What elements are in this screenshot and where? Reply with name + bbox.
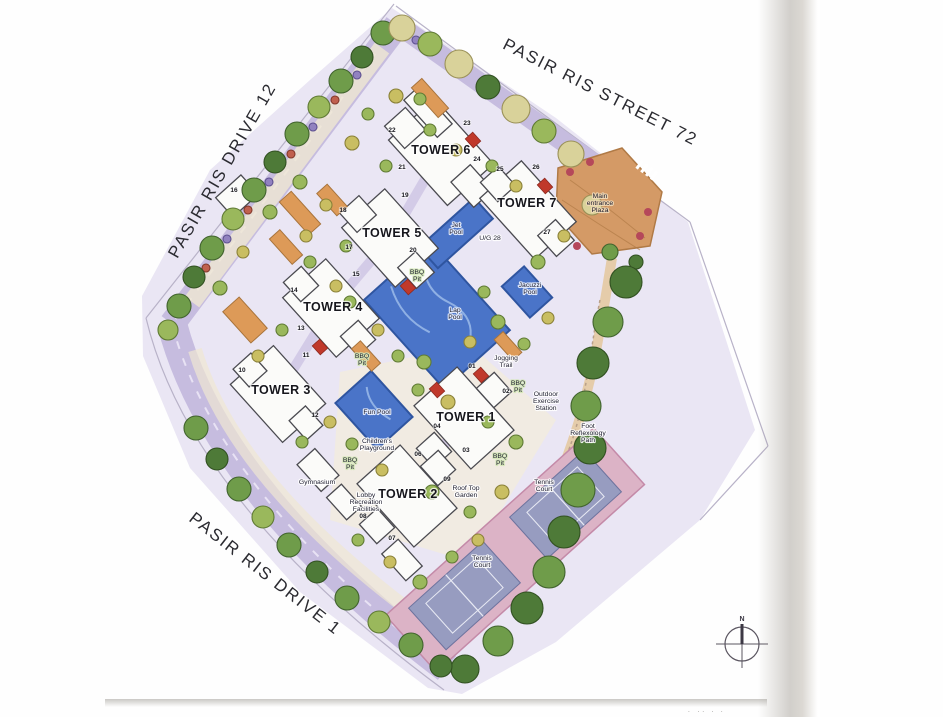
tree-icon [222,208,244,230]
shrub-icon [276,324,288,336]
block-number: 10 [238,367,246,374]
shrub-icon [372,324,384,336]
block-number: 24 [473,156,481,163]
shrub-icon [362,108,374,120]
tower-label: TOWER 5 [362,226,422,240]
shrub-icon [414,93,426,105]
tower-label: TOWER 7 [497,196,557,210]
tree-icon [368,611,390,633]
tree-icon [502,95,530,123]
block-number: 01 [468,363,476,370]
flower-bed [636,232,644,240]
block-number: 06 [414,451,422,458]
tree-icon [445,50,473,78]
shrub-icon [252,350,264,362]
shrub-icon [424,124,436,136]
block-number: 03 [462,447,470,454]
tree-icon [206,448,228,470]
flower-bed [586,158,594,166]
shrub-icon [446,551,458,563]
shrub-icon [464,506,476,518]
tower-label: TOWER 2 [378,487,438,501]
tree-icon [430,655,452,677]
block-number: 21 [398,164,406,171]
flower-bed [566,168,574,176]
tree-icon [577,347,609,379]
shrub-icon [223,235,231,243]
block-number: 26 [532,164,540,171]
block-number: 04 [433,423,441,430]
block-number: 17 [345,244,353,251]
amenity-label: Roof TopGarden [452,485,479,499]
tree-icon [610,266,642,298]
tree-icon [264,151,286,173]
tree-icon [593,307,623,337]
shrub-icon [380,160,392,172]
block-number: 09 [443,476,451,483]
scanned-site-plan-page: PASIR RIS DRIVE 12PASIR RIS STREET 72PAS… [0,0,943,717]
shrub-icon [531,255,545,269]
tree-icon [548,516,580,548]
block-number: 22 [388,127,396,134]
tree-icon [451,655,479,683]
tree-icon [252,506,274,528]
block-number: 13 [297,325,305,332]
tree-icon [335,586,359,610]
shrub-icon [244,206,252,214]
amenity-label: TennisCourt [534,479,554,493]
shrub-icon [495,485,509,499]
shrub-icon [491,315,505,329]
shrub-icon [472,534,484,546]
block-number: 02 [502,388,510,395]
shrub-icon [320,199,332,211]
tree-icon [285,122,309,146]
shrub-icon [389,89,403,103]
amenity-label: TennisCourt [472,555,492,569]
shrub-icon [478,286,490,298]
tree-icon [183,266,205,288]
tree-icon [533,556,565,588]
shrub-icon [558,230,570,242]
tree-icon [476,75,500,99]
tree-icon [351,46,373,68]
tree-icon [389,15,415,41]
tree-icon [242,178,266,202]
block-number: 25 [496,166,504,173]
shrub-icon [509,435,523,449]
block-number: 11 [303,352,310,359]
block-number: 12 [311,412,319,419]
block-number: 19 [401,192,409,199]
amenity-label: Children'sPlayground [360,438,395,452]
flower-bed [573,242,581,250]
tower-label: TOWER 1 [436,410,496,424]
shrub-icon [510,180,522,192]
shrub-icon [213,281,227,295]
tree-icon [227,477,251,501]
amenity-label: LapPool [448,307,462,321]
shrub-icon [287,150,295,158]
tower-label: TOWER 3 [251,383,311,397]
compass-rose: N [716,616,768,668]
shrub-icon [331,96,339,104]
shrub-icon [413,575,427,589]
shrub-icon [542,312,554,324]
tree-icon [483,626,513,656]
shrub-icon [384,556,396,568]
tree-icon [158,320,178,340]
tower-label: TOWER 6 [411,143,471,157]
block-number: 07 [388,535,396,542]
shrub-icon [345,136,359,150]
tree-icon [418,32,442,56]
shrub-icon [353,71,361,79]
flower-bed [644,208,652,216]
shrub-icon [376,464,388,476]
amenity-label: OutdoorExerciseStation [533,391,559,412]
site-plan-map[interactable]: PASIR RIS DRIVE 12PASIR RIS STREET 72PAS… [0,0,943,717]
tree-icon [277,533,301,557]
tree-icon [308,96,330,118]
edge-caption-fragment: · ·· · · [688,709,726,715]
tree-icon [532,119,556,143]
tree-icon [329,69,353,93]
shrub-icon [237,246,249,258]
shrub-icon [602,244,618,260]
shrub-icon [518,338,530,350]
shrub-icon [296,436,308,448]
block-number: 15 [352,271,360,278]
shrub-icon [346,438,358,450]
shrub-icon [441,395,455,409]
shrub-icon [304,256,316,268]
tree-icon [571,391,601,421]
block-number: 20 [409,247,417,254]
tree-icon [511,592,543,624]
tree-icon [167,294,191,318]
tree-icon [561,473,595,507]
shrub-icon [293,175,307,189]
shrub-icon [309,123,317,131]
block-number: 27 [543,229,551,236]
block-number: 08 [359,513,367,520]
shrub-icon [263,205,277,219]
tower-label: TOWER 4 [303,300,363,314]
shrub-icon [412,384,424,396]
shrub-icon [300,230,312,242]
amenity-label: Fun Pool [363,409,391,416]
shrub-icon [417,355,431,369]
amenity-label: Gymnasium [299,479,336,486]
tree-icon [558,141,584,167]
shrub-icon [324,416,336,428]
shrub-icon [392,350,404,362]
shrub-icon [330,280,342,292]
block-number: 18 [339,207,347,214]
crosswalk-stripe [645,167,653,177]
tree-icon [184,416,208,440]
tree-icon [399,633,423,657]
amenity-label: U/G 28 [479,235,501,242]
block-number: 23 [463,120,471,127]
shrub-icon [352,534,364,546]
block-number: 16 [230,187,238,194]
tree-icon [200,236,224,260]
compass-north-label: N [739,616,744,623]
shrub-icon [464,336,476,348]
crosswalk-stripe [650,171,658,181]
tree-icon [306,561,328,583]
shrub-icon [265,178,273,186]
block-number: 14 [290,287,298,294]
